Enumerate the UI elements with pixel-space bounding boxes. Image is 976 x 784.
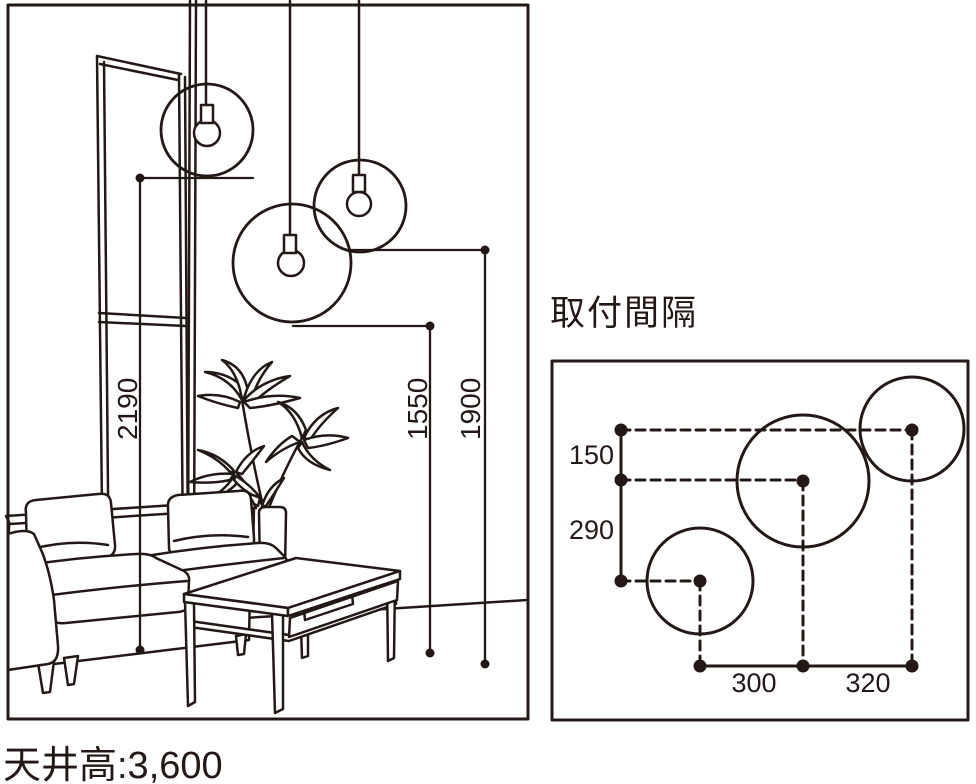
mount-point (694, 575, 707, 588)
spacing-label-290: 290 (569, 515, 614, 545)
table-leg (272, 613, 283, 713)
mount-point (615, 474, 628, 487)
spacing-label-320: 320 (845, 668, 890, 698)
pendant-bulb (347, 192, 371, 216)
mount-point (906, 424, 919, 437)
dimension-label: 1550 (402, 378, 433, 440)
dimension-label: 1900 (455, 378, 486, 440)
pendant-lamp (233, 1, 351, 322)
pendant-socket (353, 175, 365, 192)
mounting-spacing-diagram: 取付間隔 150 290 300 320 (540, 0, 976, 784)
room-elevation-drawing: 2190 1550 1900 天井高:3,600 (0, 0, 540, 784)
mount-point (906, 660, 919, 673)
mount-point (615, 424, 628, 437)
mount-point (615, 575, 628, 588)
mount-point (694, 660, 707, 673)
pendant-lamp (161, 1, 253, 176)
ceiling-height-caption: 天井高:3,600 (3, 745, 223, 784)
pendant-lamp (314, 1, 406, 252)
spacing-title: 取付間隔 (550, 294, 698, 333)
mount-point (797, 660, 810, 673)
sofa-leg (64, 656, 78, 685)
lamp-plan-circles (647, 377, 964, 634)
spacing-label-300: 300 (731, 668, 776, 698)
spacing-label-150: 150 (569, 440, 614, 470)
sofa-leg (236, 634, 246, 655)
dimension-label: 2190 (112, 378, 143, 440)
pendant-socket (284, 235, 296, 253)
mount-point (797, 475, 810, 488)
table-leg (185, 601, 195, 706)
pendant-socket (201, 105, 213, 123)
